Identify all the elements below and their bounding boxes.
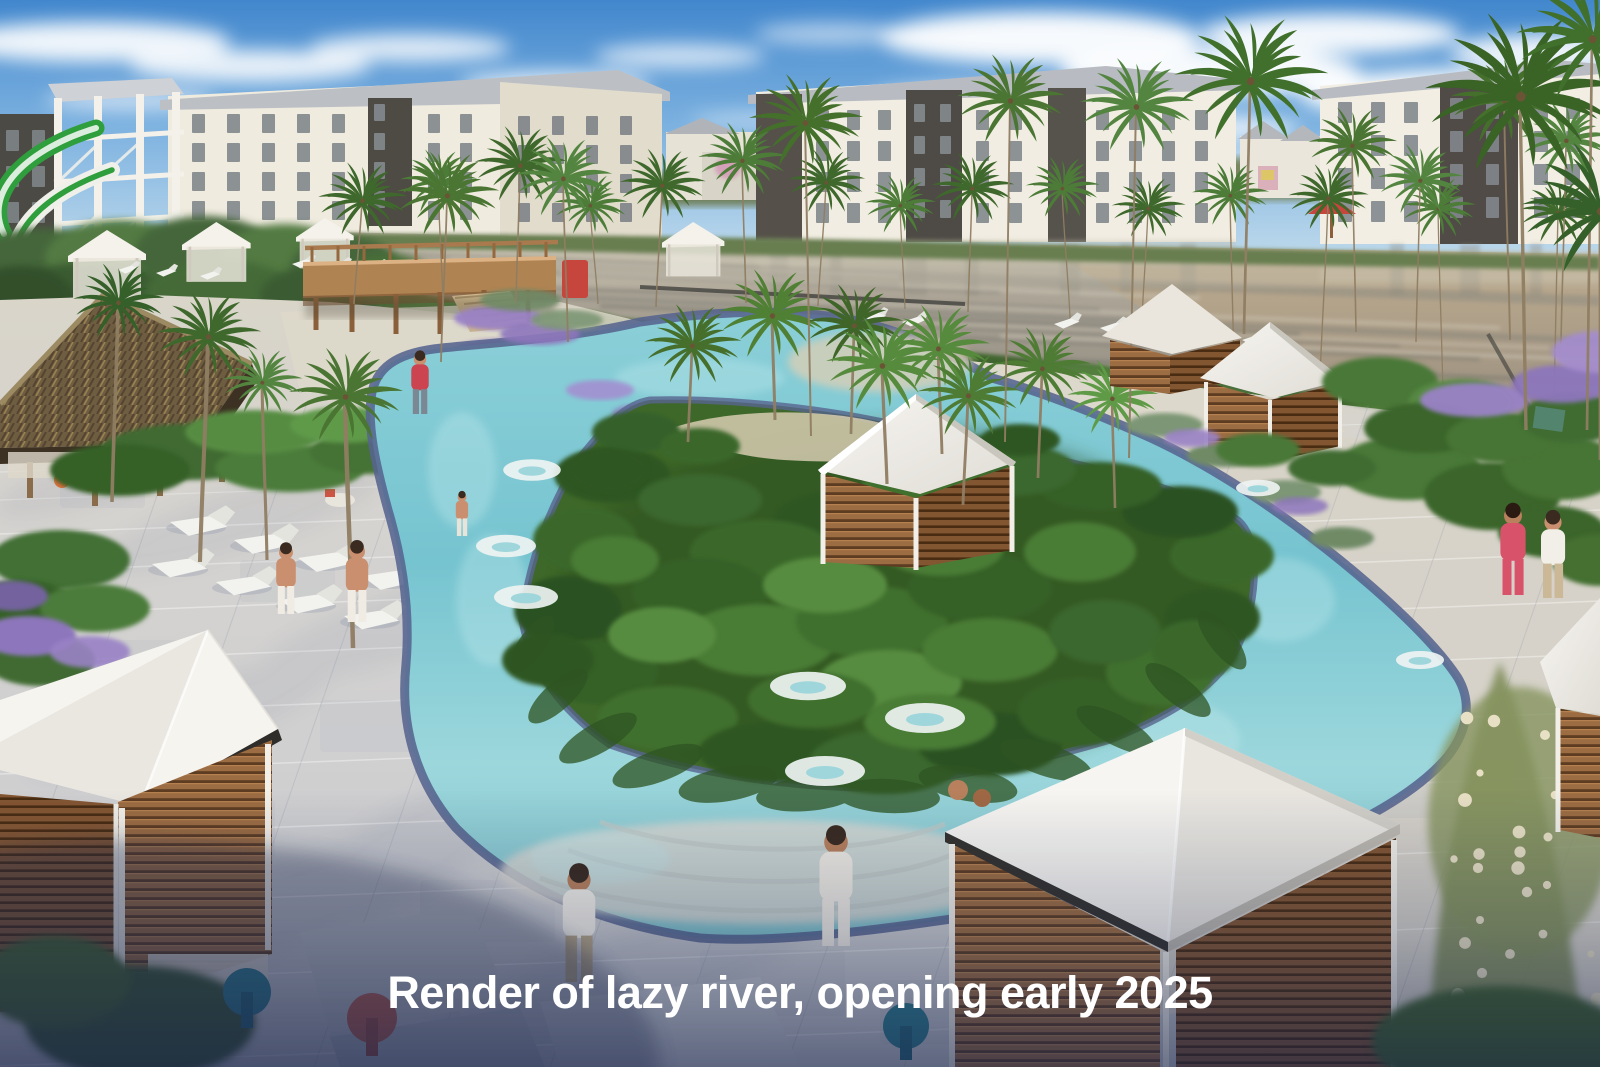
svg-text:Render of lazy river, opening: Render of lazy river, opening early 2025: [387, 967, 1212, 1018]
